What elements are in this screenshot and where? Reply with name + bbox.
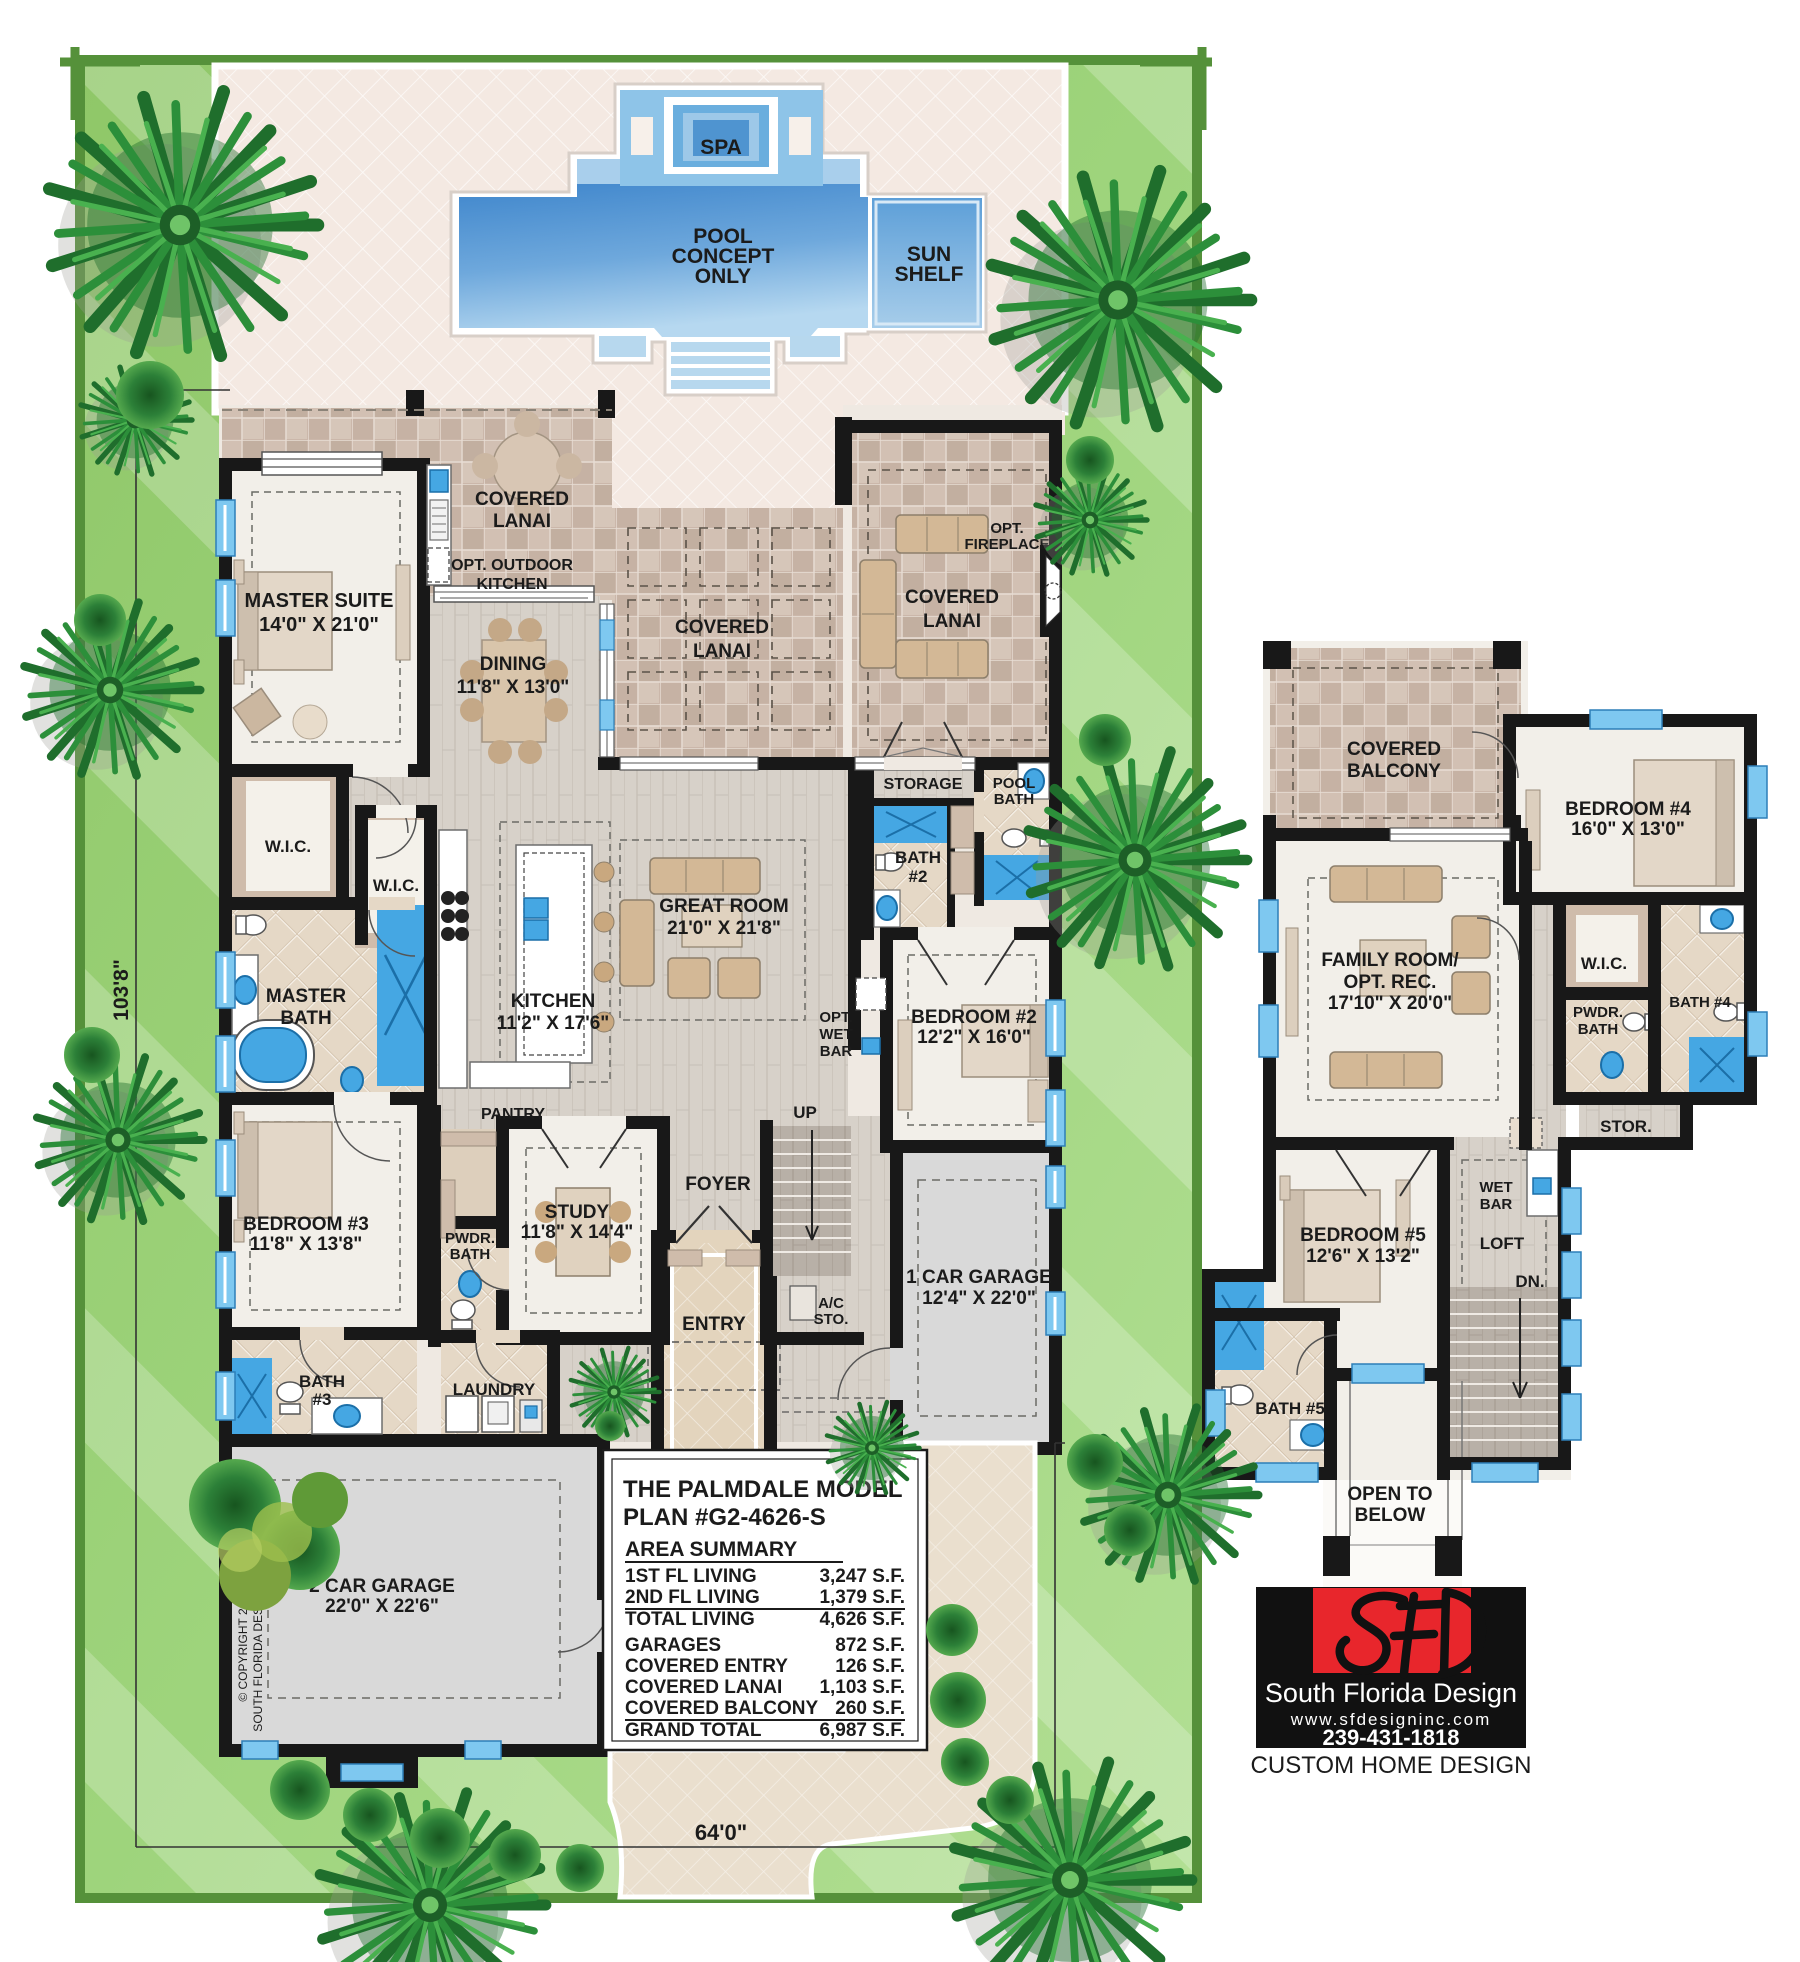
svg-text:1ST FL LIVING: 1ST FL LIVING [625, 1566, 757, 1587]
svg-text:11'8" X 14'4": 11'8" X 14'4" [521, 1222, 634, 1243]
svg-text:UP: UP [793, 1103, 817, 1122]
svg-text:2 CAR GARAGE: 2 CAR GARAGE [309, 1576, 455, 1597]
svg-text:BALCONY: BALCONY [1347, 761, 1441, 782]
svg-text:MASTER: MASTER [266, 986, 347, 1007]
svg-text:BEDROOM #3: BEDROOM #3 [243, 1214, 369, 1235]
svg-text:W.I.C.: W.I.C. [1581, 954, 1627, 973]
svg-text:LANAI: LANAI [693, 641, 751, 662]
svg-text:BATH #5: BATH #5 [1255, 1399, 1325, 1418]
svg-text:SPA: SPA [700, 136, 742, 159]
svg-text:ONLY: ONLY [695, 265, 751, 288]
svg-text:3,247 S.F.: 3,247 S.F. [819, 1566, 905, 1587]
svg-text:PANTRY: PANTRY [481, 1106, 545, 1123]
svg-text:OPT. OUTDOOR: OPT. OUTDOOR [451, 557, 573, 574]
svg-text:6,987 S.F.: 6,987 S.F. [819, 1720, 905, 1741]
svg-text:239-431-1818: 239-431-1818 [1322, 1725, 1459, 1750]
svg-text:LANAI: LANAI [493, 511, 551, 532]
svg-text:#2: #2 [909, 867, 928, 886]
svg-text:KITCHEN: KITCHEN [511, 991, 595, 1012]
svg-text:BATH: BATH [280, 1008, 331, 1029]
svg-text:LAUNDRY: LAUNDRY [453, 1380, 536, 1399]
svg-text:STUDY: STUDY [545, 1202, 610, 1223]
svg-text:COVERED BALCONY: COVERED BALCONY [625, 1698, 819, 1719]
svg-text:LANAI: LANAI [923, 611, 981, 632]
svg-text:BAR: BAR [820, 1043, 853, 1060]
svg-text:BATH: BATH [1578, 1021, 1619, 1038]
svg-text:126 S.F.: 126 S.F. [835, 1656, 905, 1677]
svg-text:2ND FL LIVING: 2ND FL LIVING [625, 1587, 760, 1608]
svg-text:OPT.: OPT. [819, 1009, 852, 1026]
svg-text:A/C: A/C [818, 1295, 844, 1312]
svg-text:WET: WET [1479, 1179, 1512, 1196]
svg-text:64'0": 64'0" [695, 1820, 747, 1845]
svg-text:STO.: STO. [814, 1311, 849, 1328]
svg-text:ENTRY: ENTRY [682, 1314, 746, 1335]
svg-text:BATH: BATH [299, 1372, 345, 1391]
svg-text:PWDR.: PWDR. [1573, 1004, 1623, 1021]
svg-text:#3: #3 [313, 1390, 332, 1409]
svg-text:KITCHEN: KITCHEN [476, 576, 547, 593]
svg-text:OPT.: OPT. [990, 520, 1023, 537]
svg-text:11'8" X 13'0": 11'8" X 13'0" [457, 677, 570, 698]
svg-text:GREAT ROOM: GREAT ROOM [659, 896, 788, 917]
svg-text:1 CAR GARAGE: 1 CAR GARAGE [906, 1267, 1052, 1288]
svg-text:GARAGES: GARAGES [625, 1635, 721, 1656]
svg-text:103'8": 103'8" [110, 959, 133, 1021]
svg-text:16'0" X 13'0": 16'0" X 13'0" [1571, 819, 1685, 840]
svg-text:MASTER SUITE: MASTER SUITE [245, 590, 394, 612]
svg-text:COVERED: COVERED [475, 489, 569, 510]
svg-text:BATH: BATH [450, 1246, 491, 1263]
svg-text:OPEN TO: OPEN TO [1347, 1484, 1432, 1505]
svg-text:12'2" X 16'0": 12'2" X 16'0" [917, 1027, 1031, 1048]
svg-text:W.I.C.: W.I.C. [373, 876, 419, 895]
svg-text:BEDROOM #4: BEDROOM #4 [1565, 799, 1691, 820]
svg-text:872 S.F.: 872 S.F. [835, 1635, 905, 1656]
svg-text:17'10" X 20'0": 17'10" X 20'0" [1328, 993, 1452, 1014]
svg-text:COVERED: COVERED [905, 587, 999, 608]
svg-text:11'8" X 13'8": 11'8" X 13'8" [250, 1234, 363, 1255]
svg-text:DINING: DINING [480, 654, 547, 675]
svg-text:POOL: POOL [993, 775, 1036, 792]
svg-text:COVERED: COVERED [1347, 739, 1441, 760]
svg-text:12'6" X 13'2": 12'6" X 13'2" [1306, 1246, 1420, 1267]
svg-text:SHELF: SHELF [895, 263, 964, 286]
svg-text:PLAN #G2-4626-S: PLAN #G2-4626-S [623, 1504, 826, 1531]
svg-text:22'0" X 22'6": 22'0" X 22'6" [325, 1596, 439, 1617]
svg-text:21'0" X 21'8": 21'0" X 21'8" [667, 918, 781, 939]
svg-text:FAMILY ROOM/: FAMILY ROOM/ [1321, 950, 1459, 971]
svg-text:BEDROOM #2: BEDROOM #2 [911, 1007, 1037, 1028]
svg-text:COVERED ENTRY: COVERED ENTRY [625, 1656, 788, 1677]
svg-text:260 S.F.: 260 S.F. [835, 1698, 905, 1719]
svg-text:South Florida Design: South Florida Design [1265, 1678, 1517, 1708]
svg-text:4,626 S.F.: 4,626 S.F. [819, 1609, 905, 1630]
svg-text:CUSTOM HOME DESIGN: CUSTOM HOME DESIGN [1251, 1752, 1532, 1779]
svg-text:BATH: BATH [895, 848, 941, 867]
svg-text:WET: WET [819, 1026, 852, 1043]
svg-text:PWDR.: PWDR. [445, 1230, 495, 1247]
svg-text:LOFT: LOFT [1480, 1234, 1525, 1253]
svg-text:TOTAL LIVING: TOTAL LIVING [625, 1609, 755, 1630]
svg-text:STOR.: STOR. [1600, 1117, 1652, 1136]
svg-text:FOYER: FOYER [685, 1174, 751, 1195]
svg-text:14'0" X 21'0": 14'0" X 21'0" [259, 614, 379, 636]
svg-text:COVERED LANAI: COVERED LANAI [625, 1677, 782, 1698]
svg-text:BATH: BATH [994, 791, 1035, 808]
svg-text:12'4" X 22'0": 12'4" X 22'0" [922, 1288, 1036, 1309]
svg-text:BELOW: BELOW [1355, 1505, 1426, 1526]
svg-text:W.I.C.: W.I.C. [265, 837, 311, 856]
svg-text:OPT. REC.: OPT. REC. [1344, 972, 1437, 993]
svg-text:11'2" X 17'6": 11'2" X 17'6" [497, 1013, 610, 1034]
svg-text:STORAGE: STORAGE [884, 776, 963, 793]
svg-text:BATH #4: BATH #4 [1669, 994, 1731, 1011]
svg-text:BAR: BAR [1480, 1196, 1513, 1213]
svg-text:COVERED: COVERED [675, 617, 769, 638]
svg-text:BEDROOM #5: BEDROOM #5 [1300, 1225, 1426, 1246]
svg-text:1,103 S.F.: 1,103 S.F. [819, 1677, 905, 1698]
svg-text:GRAND TOTAL: GRAND TOTAL [625, 1720, 762, 1741]
svg-text:AREA SUMMARY: AREA SUMMARY [625, 1538, 797, 1561]
svg-text:1,379 S.F.: 1,379 S.F. [819, 1587, 905, 1608]
svg-text:DN.: DN. [1515, 1272, 1544, 1291]
